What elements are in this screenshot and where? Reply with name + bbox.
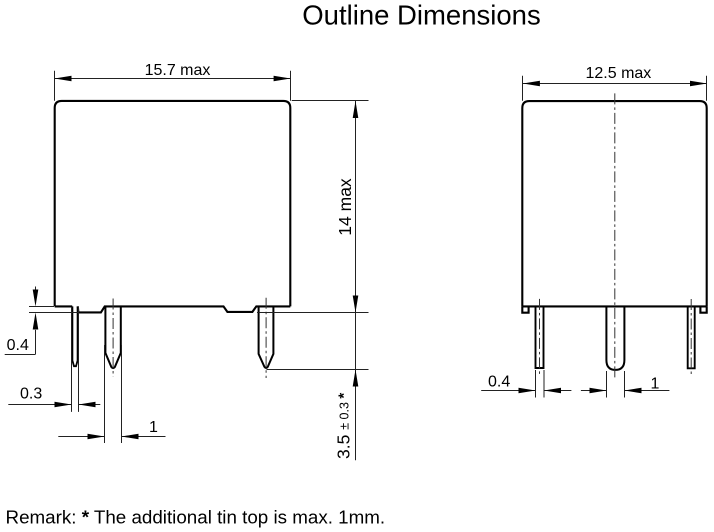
svg-text:0.3: 0.3 bbox=[20, 385, 42, 402]
svg-text:Outline Dimensions: Outline Dimensions bbox=[302, 0, 540, 30]
svg-text:15.7 max: 15.7 max bbox=[145, 62, 211, 79]
svg-text:0.4: 0.4 bbox=[7, 337, 29, 354]
svg-text:1: 1 bbox=[651, 375, 660, 392]
svg-text:12.5 max: 12.5 max bbox=[585, 65, 651, 82]
svg-text:1: 1 bbox=[149, 419, 158, 436]
svg-text:Remark: * The additional tin t: Remark: * The additional tin top is max.… bbox=[6, 506, 386, 527]
svg-text:14 max: 14 max bbox=[335, 178, 355, 236]
svg-text:3.5 ± 0.3 *: 3.5 ± 0.3 * bbox=[333, 393, 353, 459]
svg-text:0.4: 0.4 bbox=[488, 373, 510, 390]
